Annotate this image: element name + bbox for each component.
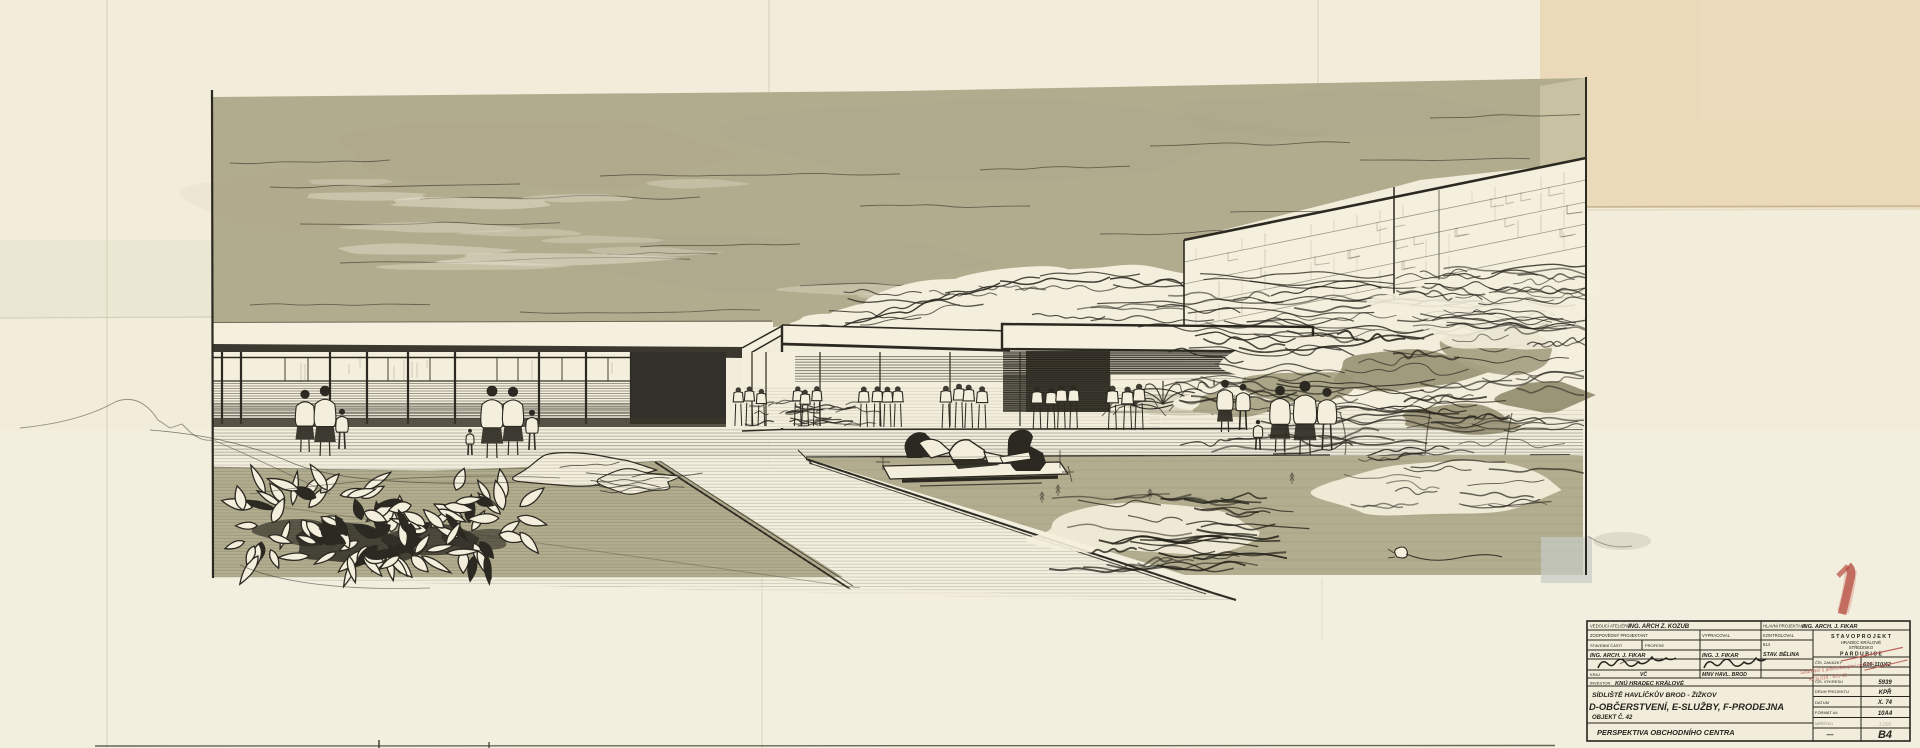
svg-text:VEDOUCÍ ATELIÉRU: VEDOUCÍ ATELIÉRU (1590, 624, 1630, 629)
svg-text:STAV. BĚLINA: STAV. BĚLINA (1763, 650, 1799, 658)
svg-text:ZODPOVĚDNÝ PROJEKTANT: ZODPOVĚDNÝ PROJEKTANT (1590, 633, 1648, 638)
svg-text:KNÚ HRADEC KRÁLOVÉ: KNÚ HRADEC KRÁLOVÉ (1615, 679, 1685, 687)
svg-text:FORMÁT A4: FORMÁT A4 (1815, 710, 1838, 715)
svg-text:STAVEBNÍ ČÁSTI: STAVEBNÍ ČÁSTI (1590, 643, 1622, 648)
svg-text:614: 614 (1763, 642, 1771, 647)
svg-text:ING. ARCH Z. KOZUB: ING. ARCH Z. KOZUB (1628, 624, 1690, 630)
svg-text:STŘEDISKO: STŘEDISKO (1849, 645, 1874, 650)
svg-text:ING. J. FIKAR: ING. J. FIKAR (1702, 653, 1738, 659)
svg-text:VČ: VČ (1640, 670, 1647, 678)
svg-text:D-OBČERSTVENÍ, E-SLUŽBY, F-PRO: D-OBČERSTVENÍ, E-SLUŽBY, F-PRODEJNA (1589, 701, 1784, 712)
svg-text:HLAVNÍ PROJEKTANT: HLAVNÍ PROJEKTANT (1763, 624, 1807, 629)
svg-text:ING. ARCH. J. FIKAR: ING. ARCH. J. FIKAR (1590, 653, 1645, 659)
svg-text:INVESTOR: INVESTOR (1590, 681, 1610, 686)
svg-text:MĚŘÍTKO: MĚŘÍTKO (1815, 721, 1833, 726)
svg-text:DATUM: DATUM (1815, 700, 1829, 705)
svg-text:ČÍS. ZAKÁZKY: ČÍS. ZAKÁZKY (1815, 660, 1842, 665)
svg-text:VYPRACOVAL: VYPRACOVAL (1702, 633, 1731, 638)
svg-text:10A4: 10A4 (1878, 711, 1893, 717)
svg-text:1:200: 1:200 (1879, 722, 1892, 728)
svg-text:KPŘ: KPŘ (1879, 688, 1892, 696)
svg-text:MNV HAVL. BROD: MNV HAVL. BROD (1702, 672, 1747, 678)
svg-text:DRUH PROJEKTU: DRUH PROJEKTU (1815, 689, 1849, 694)
svg-text:PERSPEKTIVA OBCHODNÍHO CENTRA: PERSPEKTIVA OBCHODNÍHO CENTRA (1597, 728, 1735, 737)
svg-text:B4: B4 (1878, 729, 1892, 741)
svg-text:5939: 5939 (1878, 680, 1892, 686)
svg-text:OBJEKT Č. 42: OBJEKT Č. 42 (1592, 713, 1633, 721)
svg-text:ING. ARCH. J. FIKAR: ING. ARCH. J. FIKAR (1802, 624, 1857, 630)
svg-text:PROFESE: PROFESE (1645, 643, 1664, 648)
svg-text:KONTROLOVAL: KONTROLOVAL (1763, 633, 1795, 638)
svg-text:X. 74: X. 74 (1877, 700, 1893, 706)
svg-text:KRAJ: KRAJ (1590, 672, 1600, 677)
svg-text:—: — (1827, 732, 1834, 739)
